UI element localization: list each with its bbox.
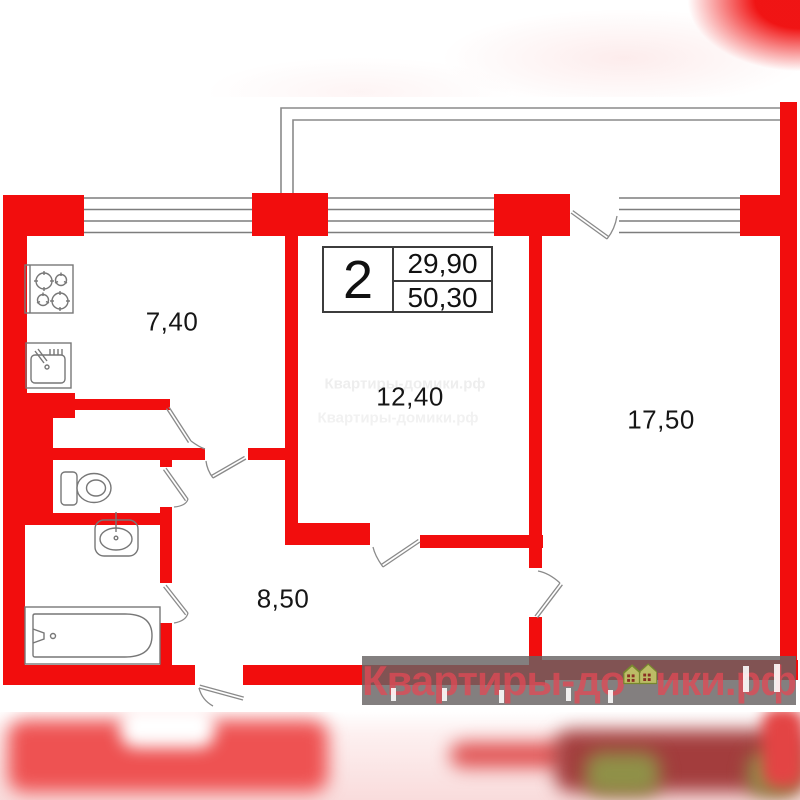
watermark-bar: Квартиры-до ики.рф (362, 656, 796, 705)
window-kitchen (84, 198, 252, 233)
kitchen-area-label: 7,40 (146, 307, 199, 338)
bottom-promo-band (0, 712, 800, 800)
rooms-count: 2 (324, 248, 394, 311)
total-area-value: 50,30 (394, 282, 491, 314)
toilet-icon (61, 472, 111, 505)
bedroom-area-label: 17,50 (627, 405, 695, 436)
watermark-tick (391, 688, 396, 701)
watermark-tick (566, 688, 571, 701)
promo-blob (585, 752, 660, 796)
bathtub-icon (25, 607, 160, 664)
window-living-room (328, 198, 494, 233)
hallway-area-label: 8,50 (257, 584, 310, 615)
living-area-value: 29,90 (394, 248, 491, 282)
watermark-tick (743, 666, 749, 692)
promo-blob (120, 712, 215, 748)
apartment-info-table: 2 29,90 50,30 (322, 246, 493, 313)
living-room-area-label: 12,40 (376, 382, 444, 413)
watermark-tick (774, 664, 780, 692)
houses-logo-icon (623, 645, 658, 703)
watermark-text-left: Квартиры-до (362, 660, 625, 702)
balcony-outline (281, 108, 780, 195)
watermark-tick (442, 688, 447, 701)
kitchen-sink-icon (26, 343, 71, 388)
promo-blob (762, 712, 800, 788)
promo-blob (450, 742, 570, 768)
stove-icon (25, 265, 73, 313)
floor-plan-page: Квартиры-домики.рф Квартиры-домики.рф 7,… (0, 0, 800, 800)
watermark-tick (499, 690, 504, 703)
watermark-tick (608, 690, 613, 703)
window-bedroom (619, 198, 740, 233)
